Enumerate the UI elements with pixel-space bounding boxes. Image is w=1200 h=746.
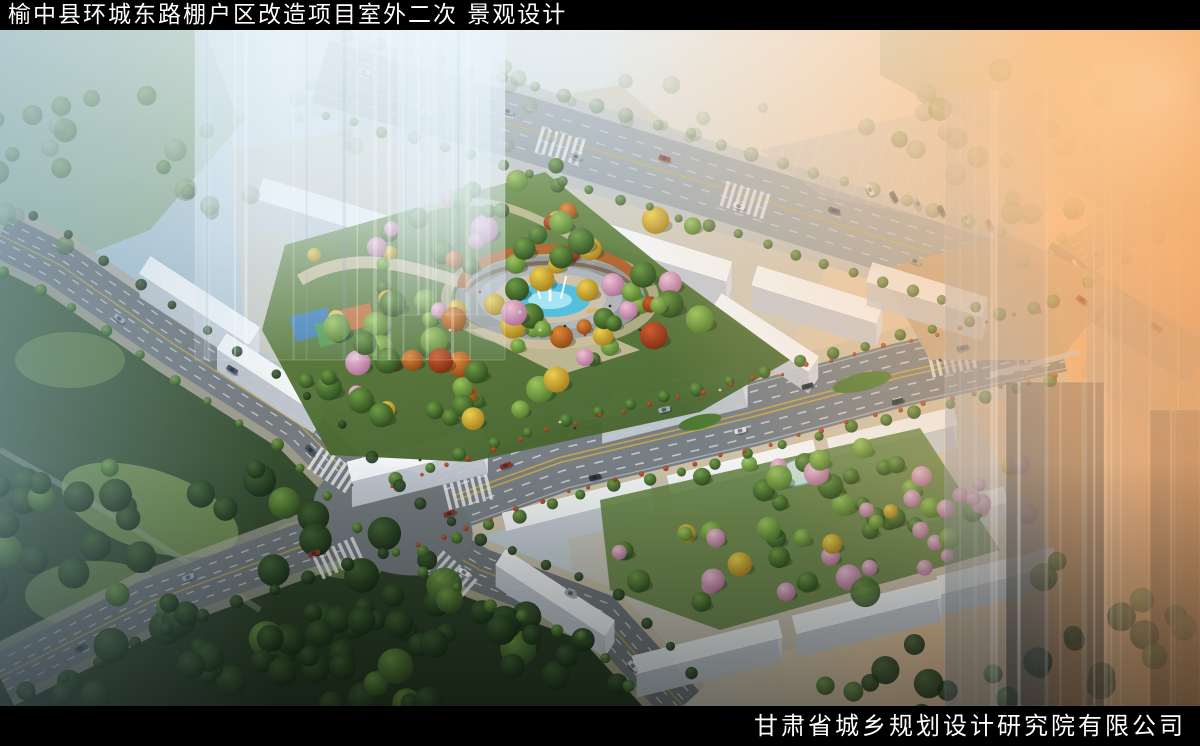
layer-haze (0, 30, 1200, 706)
project-title: 榆中县环城东路棚户区改造项目室外二次 景观设计 (8, 2, 567, 28)
company-name: 甘肃省城乡规划设计研究院有限公司 (754, 712, 1186, 740)
render-area (0, 30, 1200, 706)
poster-frame: 榆中县环城东路棚户区改造项目室外二次 景观设计 (0, 0, 1200, 746)
footer-bar: 甘肃省城乡规划设计研究院有限公司 (0, 706, 1200, 746)
title-bar: 榆中县环城东路棚户区改造项目室外二次 景观设计 (0, 0, 1200, 30)
aerial-rendering-svg (0, 30, 1200, 706)
